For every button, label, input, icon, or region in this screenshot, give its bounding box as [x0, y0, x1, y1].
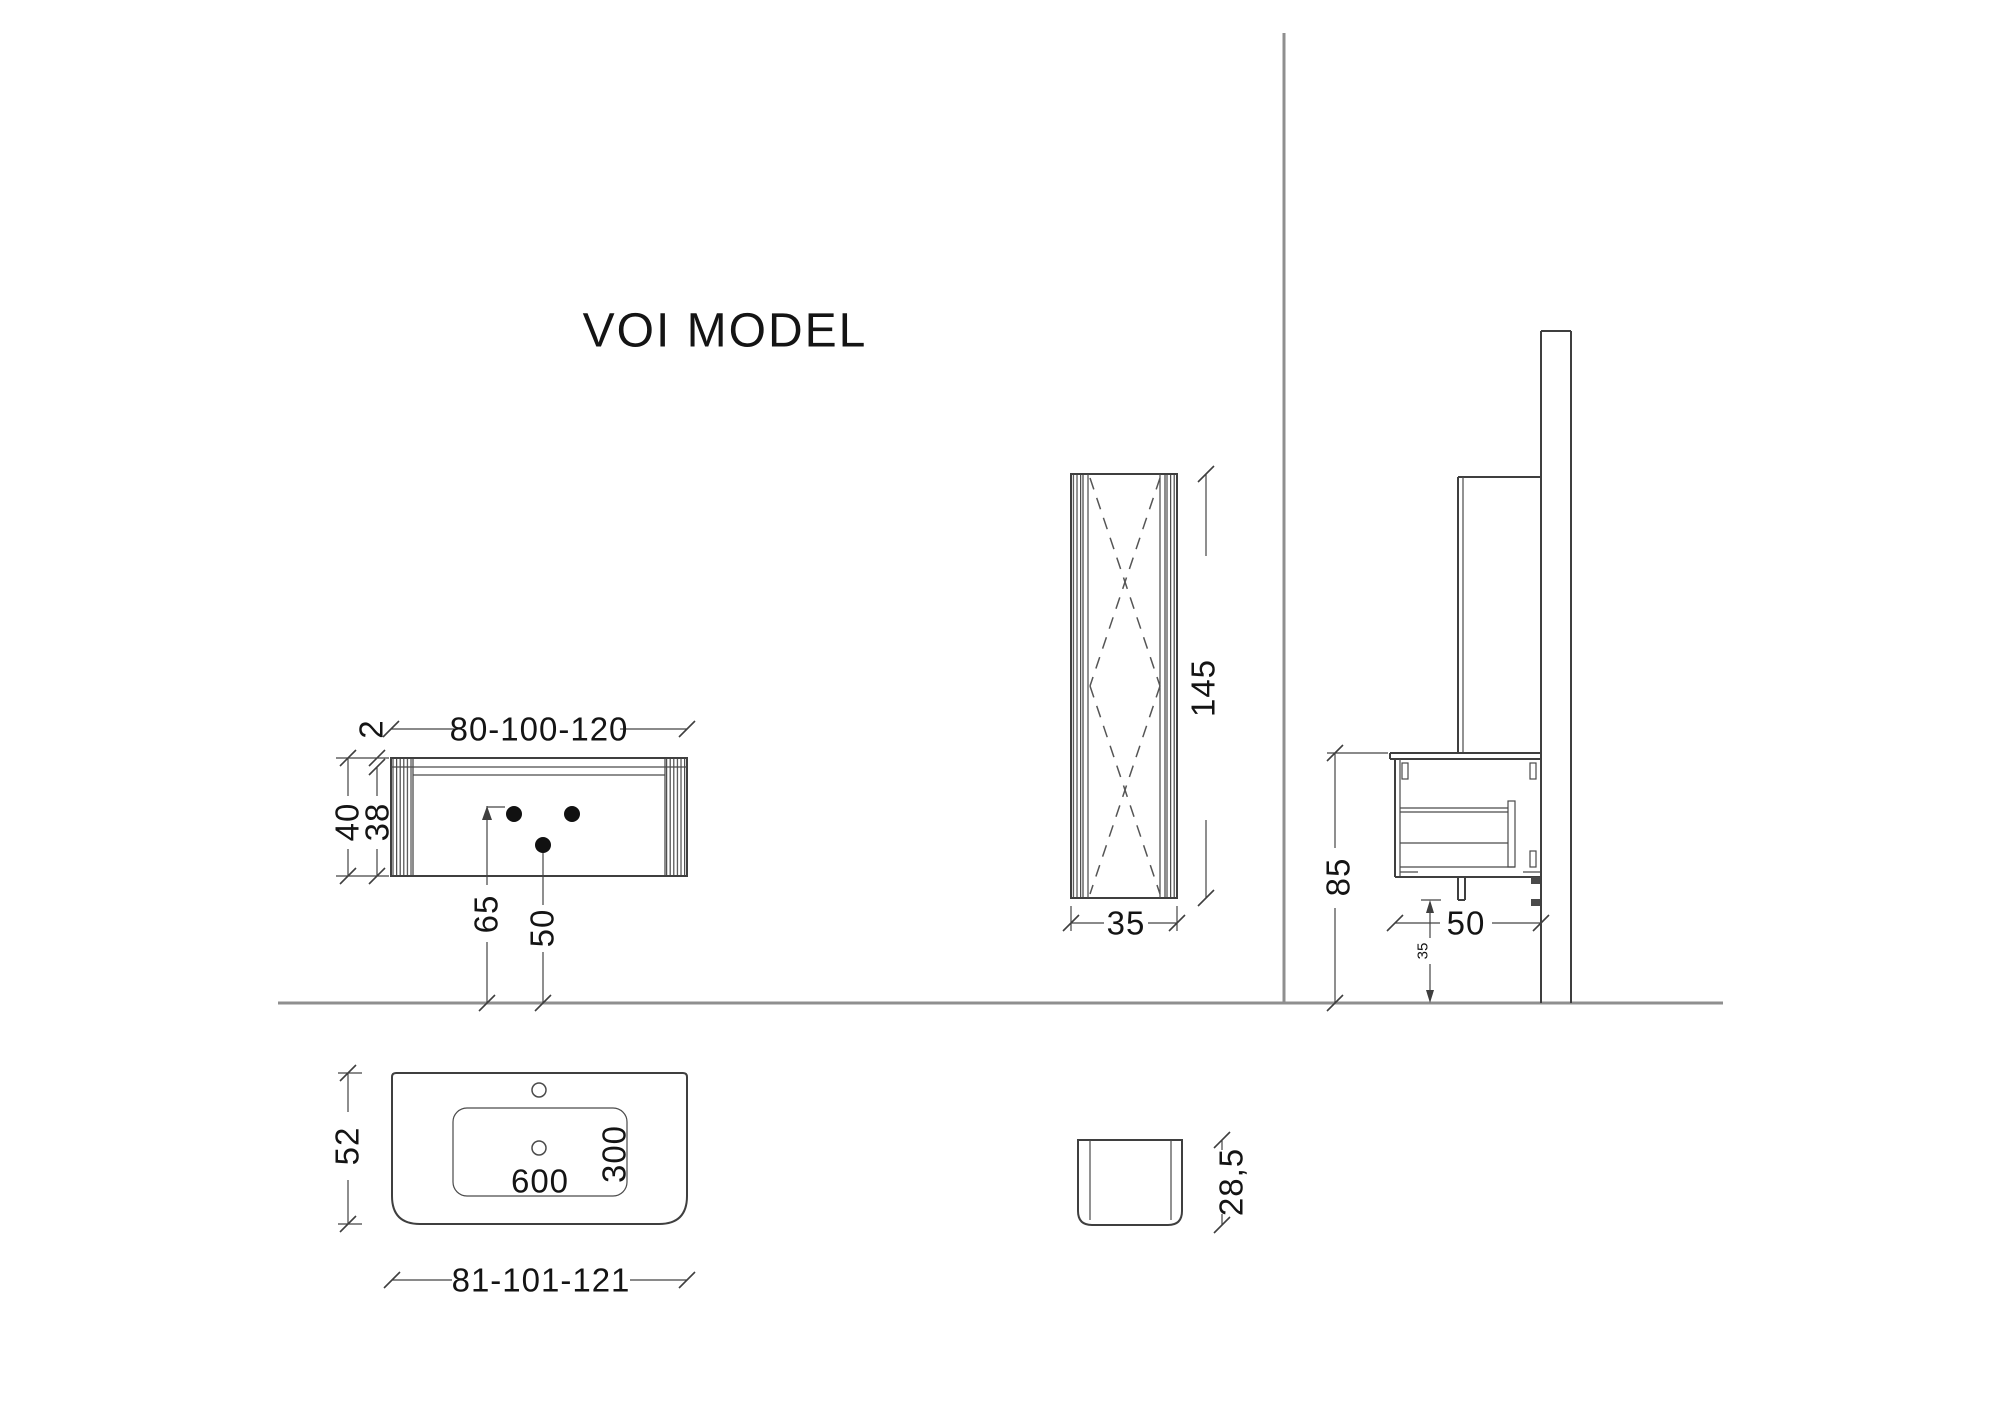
- side-cabinet-body: [1395, 759, 1541, 877]
- wall-hanger-upper: [1531, 877, 1540, 884]
- drawing-svg: VOI MODEL 80-100-120 2: [0, 0, 2000, 1413]
- basin-outline: [392, 1073, 687, 1224]
- mount-bracket-top-back: [1530, 763, 1536, 779]
- side-depth-label: 50: [1447, 905, 1486, 942]
- front-width-dimension: 80-100-120: [383, 711, 695, 748]
- front-body-height-dimension: 38: [359, 767, 396, 884]
- basin-profile-view: 28,5: [1078, 1132, 1250, 1233]
- technical-drawing-canvas: VOI MODEL 80-100-120 2: [0, 0, 2000, 1413]
- drain-hole: [535, 837, 551, 853]
- tall-cabinet-view: 145 35: [1063, 466, 1222, 942]
- front-counter-thickness-label: 2: [353, 719, 390, 738]
- basin-profile-outline: [1078, 1140, 1182, 1225]
- mount-bracket-top-front: [1402, 763, 1408, 779]
- front-drain-height-label: 50: [524, 909, 561, 948]
- front-width-label: 80-100-120: [450, 711, 629, 748]
- side-trap-height-dimension: 35: [1415, 900, 1442, 1003]
- tall-cabinet-depth-dimension: 35: [1063, 905, 1185, 942]
- back-panel: [1541, 331, 1571, 1003]
- drawer-back-panel: [1508, 801, 1515, 867]
- front-view: 80-100-120 2 40 38: [329, 711, 696, 1012]
- bowl-width-label: 600: [511, 1163, 569, 1200]
- supply-hole-right: [564, 806, 580, 822]
- wall-hanger-lower: [1531, 899, 1540, 906]
- supply-hole-left: [506, 806, 522, 822]
- basin-width-label: 81-101-121: [452, 1262, 631, 1299]
- tall-cabinet-depth-label: 35: [1107, 905, 1146, 942]
- front-body-height-label: 38: [359, 803, 396, 842]
- side-counter-height-label: 85: [1320, 858, 1357, 897]
- basin-width-dimension: 81-101-121: [384, 1262, 695, 1299]
- bowl-depth-label: 300: [596, 1125, 633, 1183]
- basin-profile-height-label: 28,5: [1213, 1148, 1250, 1216]
- tall-cabinet-left-edge-band: [1071, 474, 1083, 898]
- tall-cabinet-outline: [1071, 474, 1177, 898]
- tall-cabinet-height-label: 145: [1185, 659, 1222, 717]
- side-trap-height-label: 35: [1415, 943, 1432, 960]
- front-supply-height-label: 65: [468, 895, 505, 934]
- drain-pipe: [1458, 877, 1465, 900]
- page-title: VOI MODEL: [583, 305, 868, 358]
- side-countertop: [1390, 753, 1541, 759]
- tall-cabinet-right-edge-band: [1165, 474, 1177, 898]
- mount-bracket-bottom-back: [1530, 851, 1536, 867]
- basin-plan-view: 600 300 52 81-101-121: [329, 1065, 696, 1299]
- side-depth-dimension: 50: [1387, 905, 1549, 942]
- faucet-hole: [532, 1083, 546, 1097]
- bowl-drain-hole: [532, 1141, 546, 1155]
- basin-profile-height-dimension: 28,5: [1213, 1132, 1250, 1233]
- basin-depth-label: 52: [329, 1127, 366, 1166]
- front-counter-thickness-dimension: 2: [353, 719, 390, 775]
- basin-depth-dimension: 52: [329, 1065, 366, 1232]
- side-view: 85 50 35: [1320, 331, 1572, 1011]
- mirror-profile: [1458, 477, 1541, 753]
- tall-cabinet-height-dimension: 145: [1185, 466, 1222, 906]
- front-cabinet-outline: [391, 758, 687, 876]
- front-right-side-panel: [665, 758, 687, 876]
- side-counter-height-dimension: 85: [1320, 745, 1389, 1011]
- front-supply-height-dimension: 65: [468, 806, 506, 1011]
